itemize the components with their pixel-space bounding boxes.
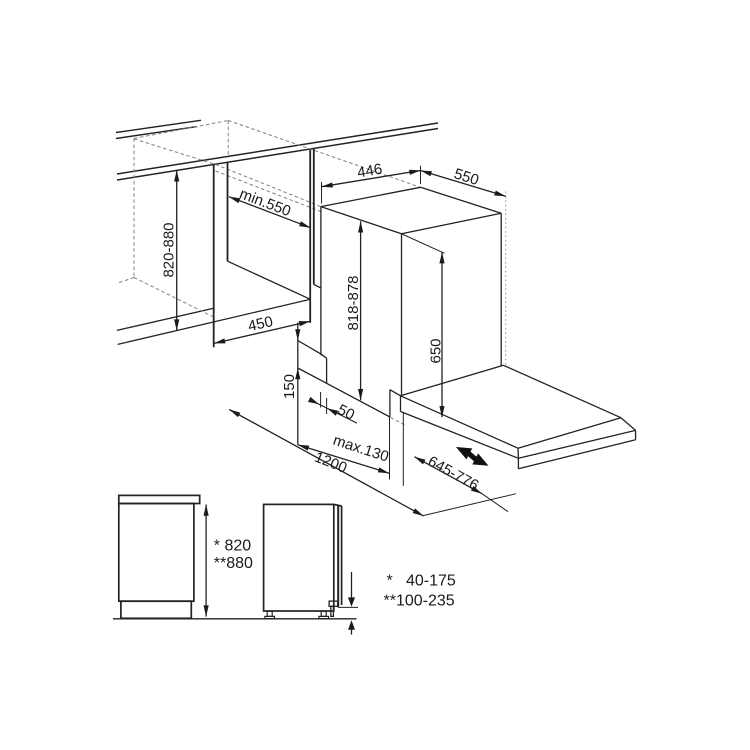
svg-text:150: 150	[281, 374, 298, 399]
svg-text:min.550: min.550	[237, 185, 293, 220]
svg-text:450: 450	[246, 313, 274, 335]
svg-text:820-880: 820-880	[161, 222, 178, 277]
svg-text:650: 650	[428, 338, 445, 363]
svg-text:550: 550	[452, 165, 481, 189]
svg-text:50: 50	[335, 401, 358, 424]
svg-text:818-878: 818-878	[345, 275, 362, 330]
svg-text:40-175: 40-175	[406, 573, 456, 590]
svg-text:446: 446	[356, 161, 383, 182]
svg-text:**100-235: **100-235	[384, 593, 455, 610]
svg-text:*: *	[387, 573, 393, 590]
svg-text:**880: **880	[214, 555, 253, 572]
svg-text:* 820: * 820	[214, 538, 251, 555]
svg-text:1200: 1200	[312, 449, 349, 477]
